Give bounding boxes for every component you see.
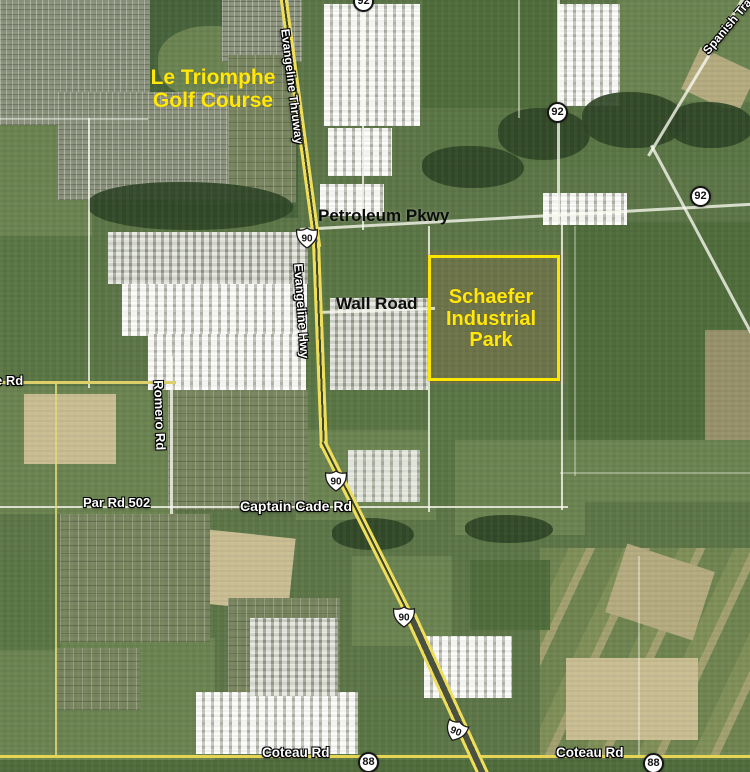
left-edge-rd-label: e Rd xyxy=(0,373,23,388)
residential-area xyxy=(55,648,140,710)
us-90-shield-number: 90 xyxy=(301,234,313,245)
petroleum-pkwy-label: Petroleum Pkwy xyxy=(318,206,449,226)
coteau-rd-label-east: Coteau Rd xyxy=(556,745,624,760)
field-patch xyxy=(566,658,698,740)
residential-area xyxy=(60,514,210,642)
satellite-map: 90 90 90 90 92 92 92 88 88 Le Triomphe G… xyxy=(0,0,750,772)
industrial-area xyxy=(122,284,307,336)
field-patch xyxy=(470,560,550,630)
us-90-shield: 90 xyxy=(324,470,348,492)
industrial-area xyxy=(250,618,338,696)
industrial-area xyxy=(328,128,392,176)
tree-cover xyxy=(422,146,524,188)
us-90-shield: 90 xyxy=(295,227,319,249)
tree-cover xyxy=(668,102,750,148)
schaefer-park-label: Schaefer Industrial Park xyxy=(428,287,554,352)
us-90-shield-number: 90 xyxy=(398,613,410,624)
road-line xyxy=(55,383,57,758)
captain-cade-rd-label: Captain Cade Rd xyxy=(240,498,352,514)
la-88-shield: 88 xyxy=(358,752,379,772)
road-line xyxy=(88,118,90,388)
road-romero-rd xyxy=(170,356,173,514)
field-patch xyxy=(705,330,750,450)
la-88-shield: 88 xyxy=(643,753,664,772)
road-line xyxy=(0,118,148,120)
romero-rd-label: Romero Rd xyxy=(151,380,168,451)
us-90-shield-number: 90 xyxy=(330,477,342,488)
golf-course-label: Le Triomphe Golf Course xyxy=(143,67,283,112)
la-92-shield: 92 xyxy=(547,102,568,123)
wall-road-label: Wall Road xyxy=(336,294,418,314)
road-line xyxy=(518,0,520,118)
field-patch xyxy=(422,0,562,108)
field-patch xyxy=(0,560,60,650)
la-92-shield: 92 xyxy=(690,186,711,207)
par-rd-502-label: Par Rd 502 xyxy=(83,495,150,510)
road-line xyxy=(638,556,640,756)
coteau-rd-label-west: Coteau Rd xyxy=(262,745,330,760)
field-patch xyxy=(580,440,750,502)
industrial-area xyxy=(324,4,420,126)
road-left-edge-rd xyxy=(0,381,176,384)
road-line xyxy=(561,224,563,510)
industrial-area xyxy=(558,4,620,106)
tree-cover xyxy=(88,182,293,230)
tree-cover xyxy=(498,108,590,160)
field-boundary-line xyxy=(574,226,576,476)
residential-area xyxy=(168,388,308,510)
field-patch xyxy=(24,394,116,464)
us-90-shield: 90 xyxy=(392,606,416,628)
road-line xyxy=(362,0,364,230)
industrial-area xyxy=(543,193,627,225)
industrial-area xyxy=(108,232,308,284)
tree-cover xyxy=(465,515,553,543)
field-boundary-line xyxy=(560,472,750,474)
industrial-area xyxy=(348,450,420,502)
